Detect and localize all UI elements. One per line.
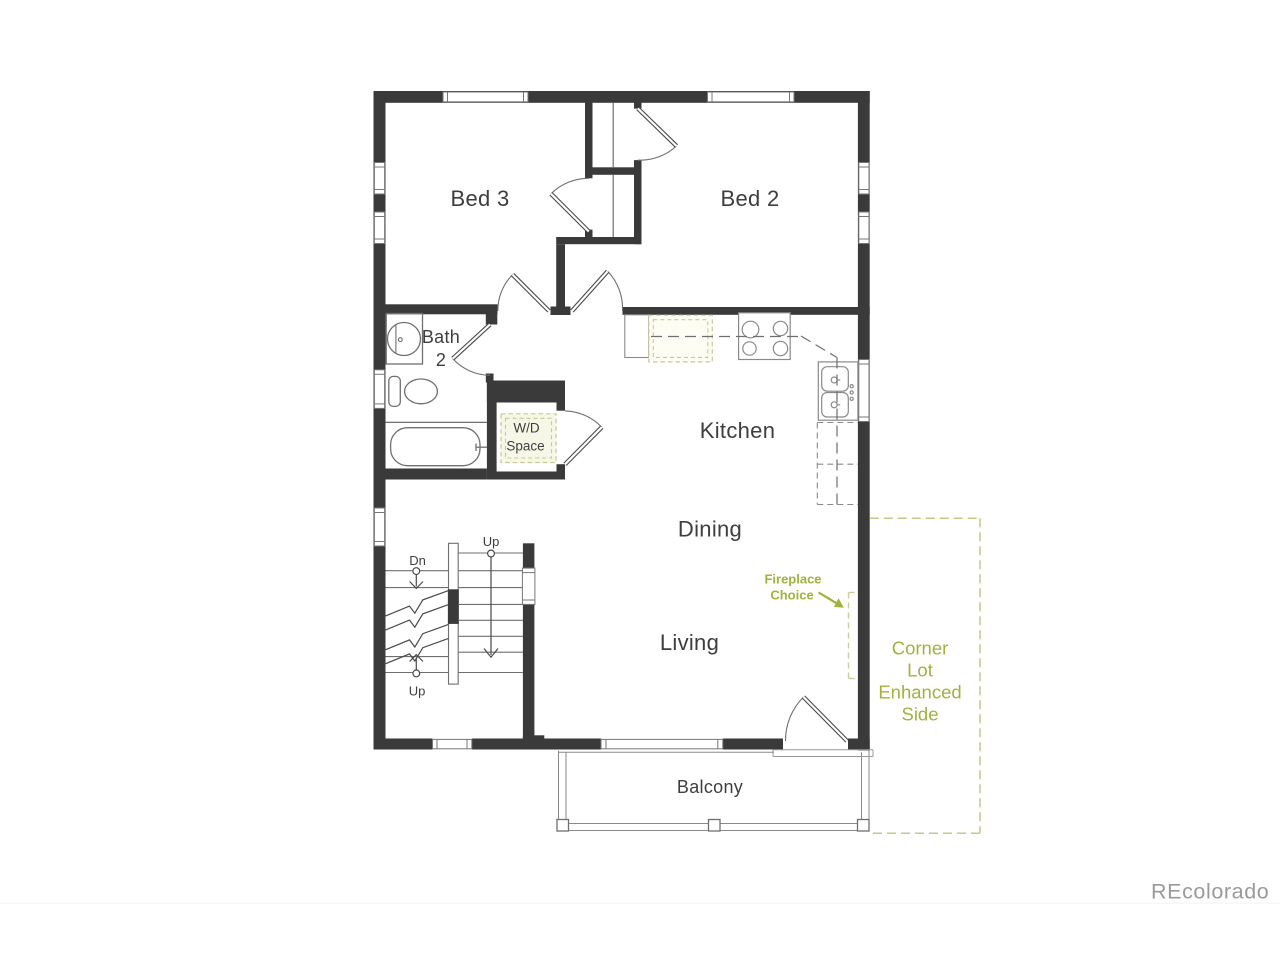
svg-text:W/D: W/D (513, 421, 539, 436)
svg-text:Bed 2: Bed 2 (721, 186, 780, 211)
svg-text:REcolorado: REcolorado (1151, 880, 1269, 904)
svg-text:Side: Side (901, 704, 938, 725)
svg-text:Bed 3: Bed 3 (451, 186, 510, 211)
svg-text:Lot: Lot (907, 660, 933, 681)
svg-text:Kitchen: Kitchen (700, 418, 775, 443)
svg-text:Space: Space (506, 439, 544, 454)
svg-text:Up: Up (483, 534, 500, 549)
svg-text:Dn: Dn (409, 553, 426, 568)
svg-text:Corner: Corner (892, 638, 949, 659)
svg-text:Living: Living (660, 630, 719, 655)
svg-text:Fireplace: Fireplace (764, 572, 821, 587)
svg-text:Up: Up (409, 684, 426, 699)
svg-text:Dining: Dining (678, 517, 742, 542)
svg-text:Enhanced: Enhanced (878, 682, 961, 703)
svg-text:Bath: Bath (422, 327, 460, 347)
svg-text:Balcony: Balcony (677, 777, 743, 797)
svg-text:2: 2 (436, 350, 446, 370)
svg-text:Choice: Choice (770, 588, 813, 603)
